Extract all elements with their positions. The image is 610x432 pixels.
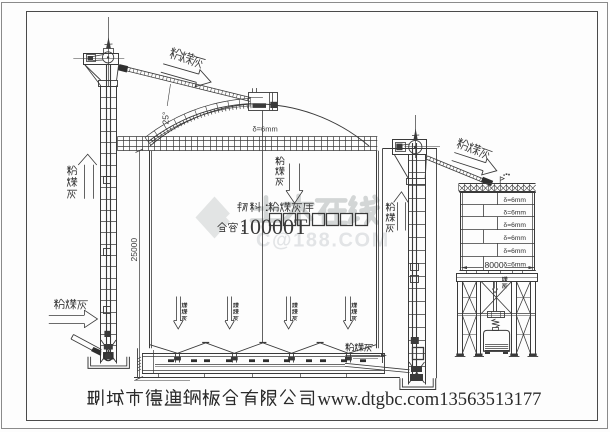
svg-text:25°: 25°	[161, 112, 171, 125]
svg-text:δ=6mm: δ=6mm	[504, 209, 527, 216]
svg-text:δ=6mm: δ=6mm	[253, 124, 278, 133]
svg-text:δ=6mm: δ=6mm	[504, 248, 527, 255]
svg-text:δ=6mm: δ=6mm	[504, 197, 527, 204]
svg-text:www.dtgbc.com13563513177: www.dtgbc.com13563513177	[318, 389, 542, 410]
svg-text:8000: 8000	[485, 260, 504, 270]
svg-text:δ=6mm: δ=6mm	[504, 222, 527, 229]
svg-text:25000: 25000	[129, 238, 139, 262]
svg-text:δ=6mm: δ=6mm	[504, 235, 527, 242]
